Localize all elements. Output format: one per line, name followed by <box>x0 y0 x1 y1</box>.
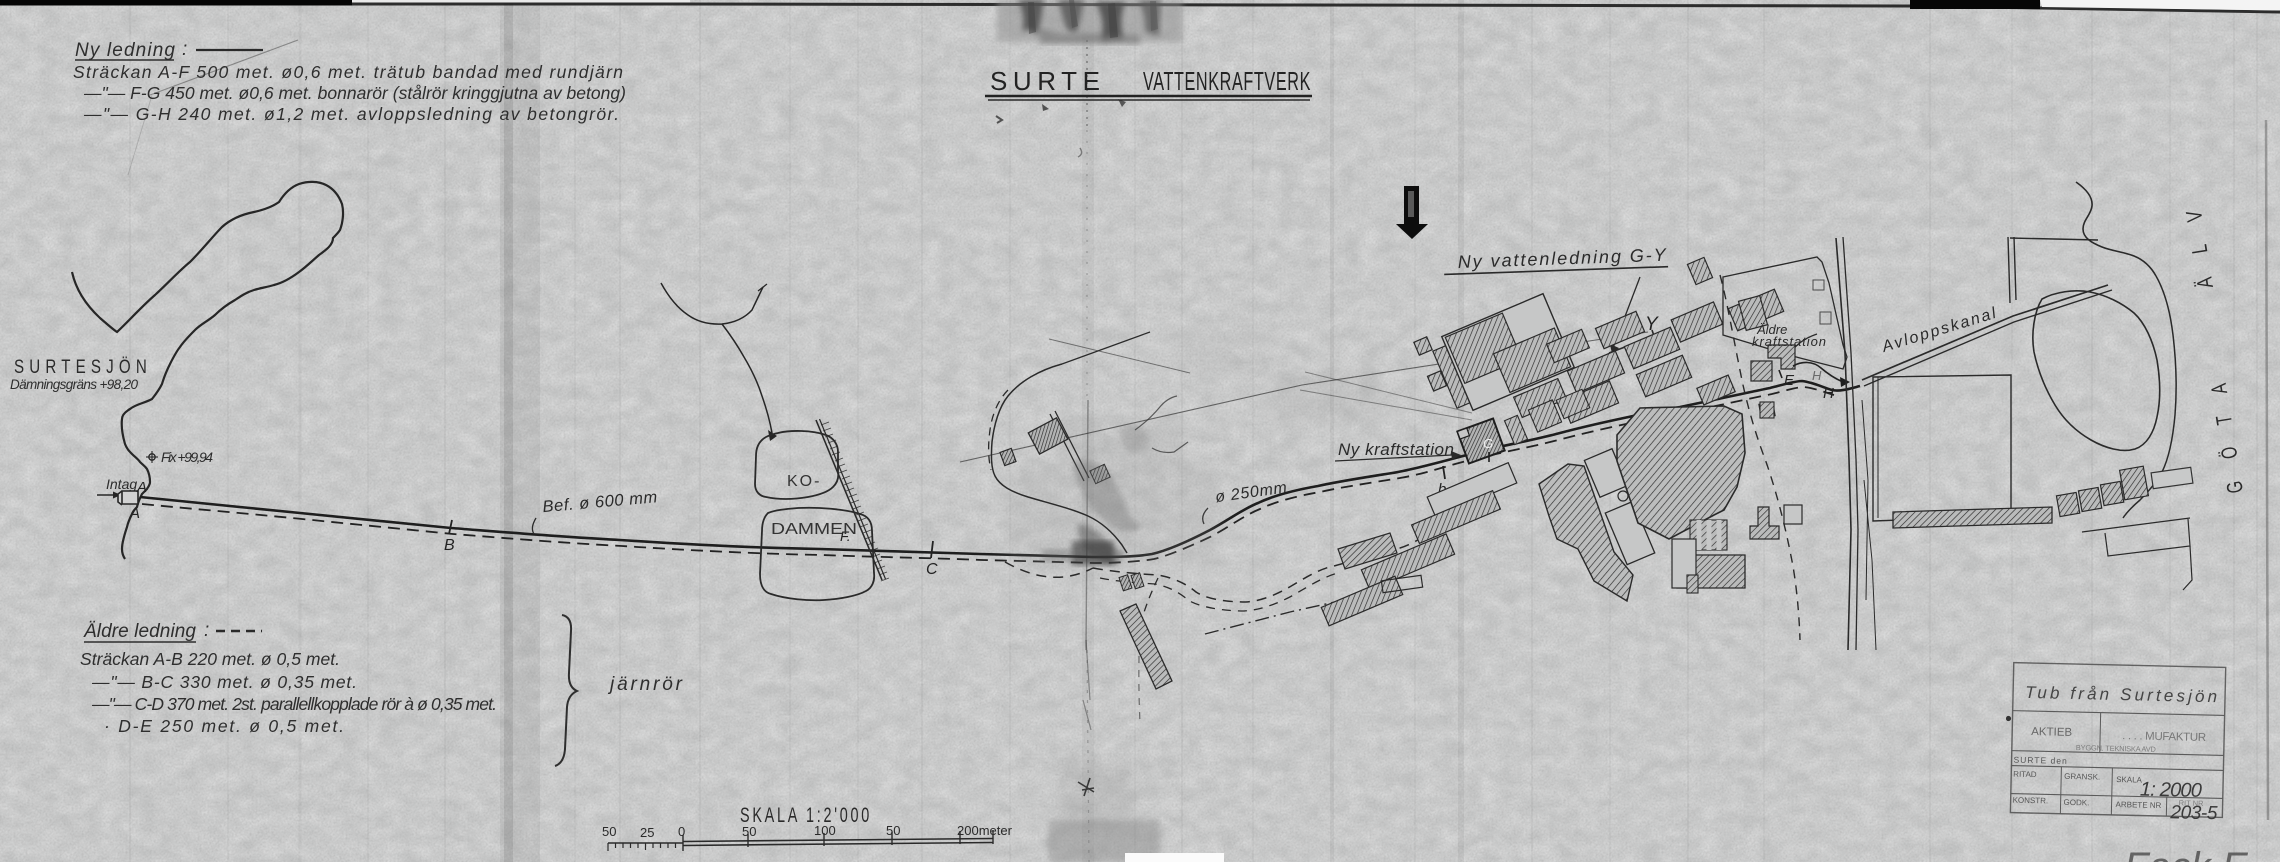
svg-text:C: C <box>926 561 938 578</box>
svg-text:SURTESJÖN: SURTESJÖN <box>14 357 152 378</box>
svg-text:200meter: 200meter <box>957 823 1013 838</box>
svg-text:Fack F: Fack F <box>2124 845 2249 862</box>
svg-text:203-5: 203-5 <box>2169 802 2218 824</box>
svg-text:GODK.: GODK. <box>2064 798 2090 808</box>
svg-text:G: G <box>1483 436 1493 451</box>
svg-text:50: 50 <box>742 824 756 839</box>
svg-text:50: 50 <box>602 824 616 839</box>
svg-text:50: 50 <box>886 823 900 838</box>
svg-text:järnrör: järnrör <box>607 674 683 695</box>
svg-text:· D-E 250 met. ø 0,5 met.: · D-E 250 met. ø 0,5 met. <box>104 716 344 736</box>
svg-text:—"— F-G 450 met. ø0,6 met.: —"— F-G 450 met. ø0,6 met. bonnarör (stå… <box>83 83 626 103</box>
svg-text:GRANSK.: GRANSK. <box>2064 772 2100 782</box>
svg-text:A: A <box>136 479 147 496</box>
svg-text:SKALA 1:2'000: SKALA 1:2'000 <box>740 804 872 827</box>
svg-text:ARBETE NR: ARBETE NR <box>2115 800 2161 810</box>
svg-text:—"— G-H 240 met. ø1,2 met.: —"— G-H 240 met. ø1,2 met. avloppslednin… <box>83 104 619 124</box>
svg-text:Sträckan A-F 500 met. ø0,6 me: Sträckan A-F 500 met. ø0,6 met. trätub b… <box>73 62 623 82</box>
svg-text:Intag: Intag <box>106 476 137 492</box>
svg-text:25: 25 <box>640 825 654 840</box>
svg-text:RITAD: RITAD <box>2013 770 2037 780</box>
svg-text:KONSTR.: KONSTR. <box>2013 796 2049 806</box>
svg-text:H: H <box>1812 368 1822 383</box>
svg-text:Sträckan A-B 220 met. ø 0,5 m: Sträckan A-B 220 met. ø 0,5 met. <box>80 649 340 669</box>
svg-text:Dämningsgräns +98,20: Dämningsgräns +98,20 <box>10 377 138 392</box>
svg-text:100: 100 <box>814 823 836 838</box>
svg-text::: : <box>182 39 187 60</box>
svg-text:H: H <box>1823 385 1834 402</box>
svg-text:SKALA: SKALA <box>2116 775 2143 785</box>
svg-text:Äldre ledning: Äldre ledning <box>83 621 196 642</box>
svg-text:Fix +99,94: Fix +99,94 <box>161 449 213 465</box>
svg-text:B: B <box>444 537 455 554</box>
svg-text:DAMMEN: DAMMEN <box>771 521 857 538</box>
svg-text:0: 0 <box>678 824 685 839</box>
svg-text:VATTENKRAFTVERK: VATTENKRAFTVERK <box>1143 66 1311 96</box>
svg-text:—"— B-C 330 met. ø 0,35 me: —"— B-C 330 met. ø 0,35 met. <box>91 672 357 692</box>
svg-text:Y: Y <box>1645 314 1659 335</box>
svg-text:SURTE: SURTE <box>990 66 1106 96</box>
svg-text:SURTE den: SURTE den <box>2013 755 2067 766</box>
svg-text:—"— C-D 370 met. 2st. para: —"— C-D 370 met. 2st. parallellkopplade … <box>91 694 497 714</box>
svg-text:Ny ledning: Ny ledning <box>75 40 175 61</box>
svg-text:. . . . MUFAKTUR: . . . . MUFAKTUR <box>2122 730 2206 744</box>
svg-text:E: E <box>1784 372 1795 389</box>
svg-text:AKTIEB: AKTIEB <box>2031 726 2072 739</box>
svg-text:BYGGN. TEKNISKA AVD: BYGGN. TEKNISKA AVD <box>2076 743 2157 754</box>
svg-text:kraftstation: kraftstation <box>1752 334 1826 349</box>
svg-text:A: A <box>129 505 140 522</box>
svg-text:KO-: KO- <box>787 473 821 490</box>
svg-text::: : <box>204 620 209 641</box>
